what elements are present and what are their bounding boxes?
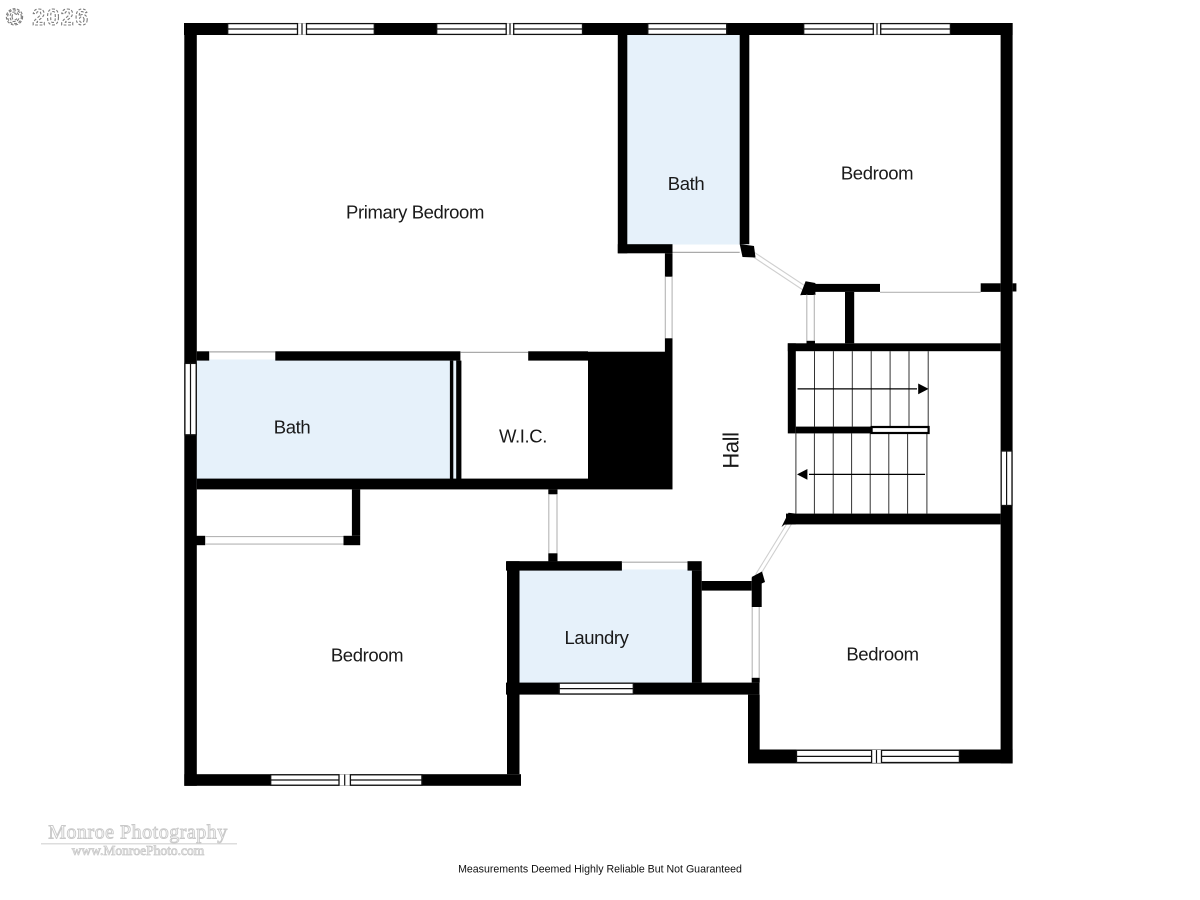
- svg-text:Bedroom: Bedroom: [331, 645, 403, 666]
- svg-text:Bedroom: Bedroom: [841, 163, 913, 184]
- svg-text:Measurements Deemed Highly Rel: Measurements Deemed Highly Reliable But …: [458, 864, 742, 876]
- svg-text:Laundry: Laundry: [564, 627, 629, 648]
- svg-text:Monroe Photography: Monroe Photography: [48, 822, 228, 844]
- svg-text:www.MonroePhoto.com: www.MonroePhoto.com: [72, 843, 205, 858]
- svg-text:Bedroom: Bedroom: [846, 644, 918, 665]
- svg-text:Hall: Hall: [719, 432, 744, 468]
- svg-text:Primary Bedroom: Primary Bedroom: [346, 202, 484, 223]
- svg-text:Bath: Bath: [668, 173, 705, 194]
- svg-text:W.I.C.: W.I.C.: [499, 426, 547, 447]
- svg-text:© 2026: © 2026: [6, 4, 90, 30]
- svg-text:Bath: Bath: [274, 417, 311, 438]
